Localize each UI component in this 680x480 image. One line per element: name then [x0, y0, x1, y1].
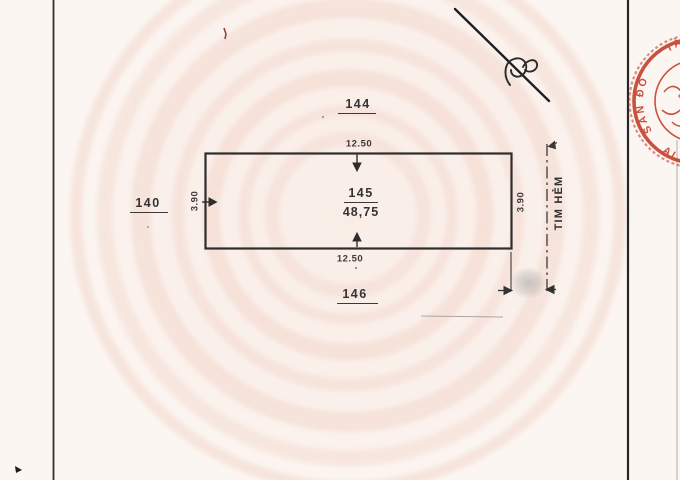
- stamp-emblem-squiggle-1: [664, 86, 680, 93]
- scanned-survey-sheet: SẢN ĐO QU TẢ AI 144 12.50 145 48,75 12.5…: [0, 0, 680, 480]
- dimension-bottom: 12.50: [337, 254, 363, 264]
- stamp-emblem-squiggle-2: [662, 108, 680, 114]
- dimension-top: 12.50: [346, 139, 372, 149]
- parcel-144-label: 144: [345, 98, 370, 111]
- alley-centerline-label: TIM HẺM: [553, 176, 565, 231]
- stamp-inner-ring: [655, 60, 680, 142]
- red-seal-stamp: SẢN ĐO QU TẢ AI: [0, 0, 680, 480]
- parcel-145-label: 145: [348, 187, 373, 200]
- stamp-arc-text: SẢN ĐO QU: [0, 0, 655, 136]
- parcel-146-label: 146: [342, 288, 367, 301]
- parcel-140-label: 140: [135, 197, 160, 210]
- parcel-145-area: 48,75: [343, 205, 379, 218]
- parcel-145-fraction-line: [344, 202, 378, 204]
- parcel-146-underline: [337, 303, 378, 305]
- stamp-emblem-squiggle-3: [672, 122, 680, 126]
- dimension-left: 3.90: [190, 191, 200, 212]
- parcel-144-underline: [338, 113, 376, 115]
- stamp-top-fragment: TẢ: [663, 35, 680, 55]
- parcel-140-underline: [130, 212, 168, 214]
- dimension-right: 3.90: [516, 192, 526, 213]
